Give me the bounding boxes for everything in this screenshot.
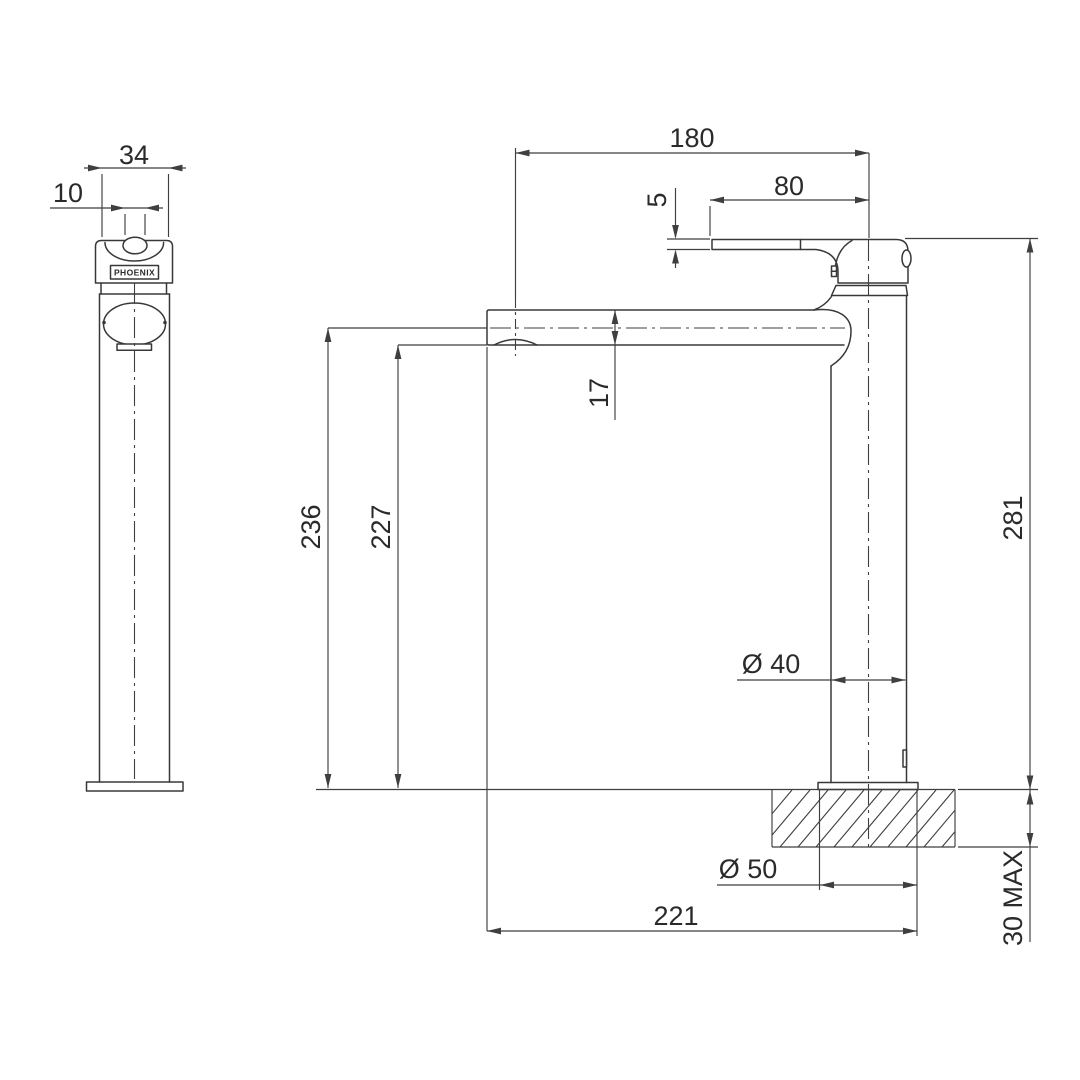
dimension-spout-tip-width: 10 [50, 178, 163, 235]
dimension-height-to-spout-centre: 236 [296, 328, 487, 788]
head-side-button [902, 250, 911, 267]
dimension-label: 10 [53, 178, 83, 208]
dimension-lines [50, 208, 163, 235]
dimension-handle-thickness: 5 [642, 188, 710, 268]
dimension-label: 180 [669, 123, 714, 153]
spout-ellipse-right-dot [163, 321, 167, 325]
dimension-label: 5 [642, 192, 672, 207]
front-lever-tip [123, 237, 147, 254]
brand-badge-label: PHOENIX [114, 268, 155, 278]
dimension-lines [398, 345, 487, 788]
handle-crease-curve [836, 241, 853, 266]
faucet-technical-drawing: PHOENIX 34 10 [0, 0, 1080, 1080]
spout-boss-curves [814, 297, 851, 367]
dimension-label: 227 [366, 504, 396, 549]
dimension-body-width: 34 [84, 140, 186, 237]
bench-section-hatch [772, 790, 955, 848]
dimension-spout-depth: 17 [584, 310, 618, 420]
dimension-label: Ø 40 [742, 649, 801, 679]
dimension-label: 17 [584, 378, 614, 408]
dimension-label: Ø 50 [719, 854, 778, 884]
hatch-lines [772, 790, 955, 847]
dimension-lines [84, 168, 186, 237]
dimension-label: 30 MAX [998, 850, 1028, 946]
dimension-label: 80 [774, 171, 804, 201]
dimension-body-diameter: Ø 40 [737, 649, 906, 683]
dimension-label: 281 [998, 495, 1028, 540]
side-handle-head-outline [712, 240, 908, 284]
dimension-lines [516, 148, 870, 298]
spout-ellipse-left-dot [102, 321, 106, 325]
dimension-label: 221 [653, 901, 698, 931]
side-collar [832, 286, 908, 296]
side-view: 180 80 5 17 236 227 [296, 123, 1038, 946]
dimension-label: 34 [119, 140, 149, 170]
head-set-screw [832, 266, 837, 277]
arrowheads [672, 225, 679, 264]
dimension-max-bench-thickness: 30 MAX [958, 790, 1038, 947]
hatch-border [772, 790, 955, 848]
dimension-label: 236 [296, 504, 326, 549]
dimension-height-to-spout-underside: 227 [366, 345, 487, 788]
brand-badge: PHOENIX [111, 266, 159, 280]
dimension-lines [487, 347, 917, 931]
drawing-page: PHOENIX 34 10 [0, 0, 1080, 1080]
front-base-plate [87, 782, 184, 791]
dimension-base-diameter: Ø 50 [717, 790, 917, 936]
dimension-lines [710, 200, 869, 236]
column-grub-screw [903, 750, 907, 767]
dimension-lines [328, 328, 487, 788]
dimension-overall-height: 281 [905, 239, 1038, 790]
dimension-handle-length: 80 [710, 171, 869, 236]
front-view: PHOENIX 34 10 [50, 140, 186, 791]
